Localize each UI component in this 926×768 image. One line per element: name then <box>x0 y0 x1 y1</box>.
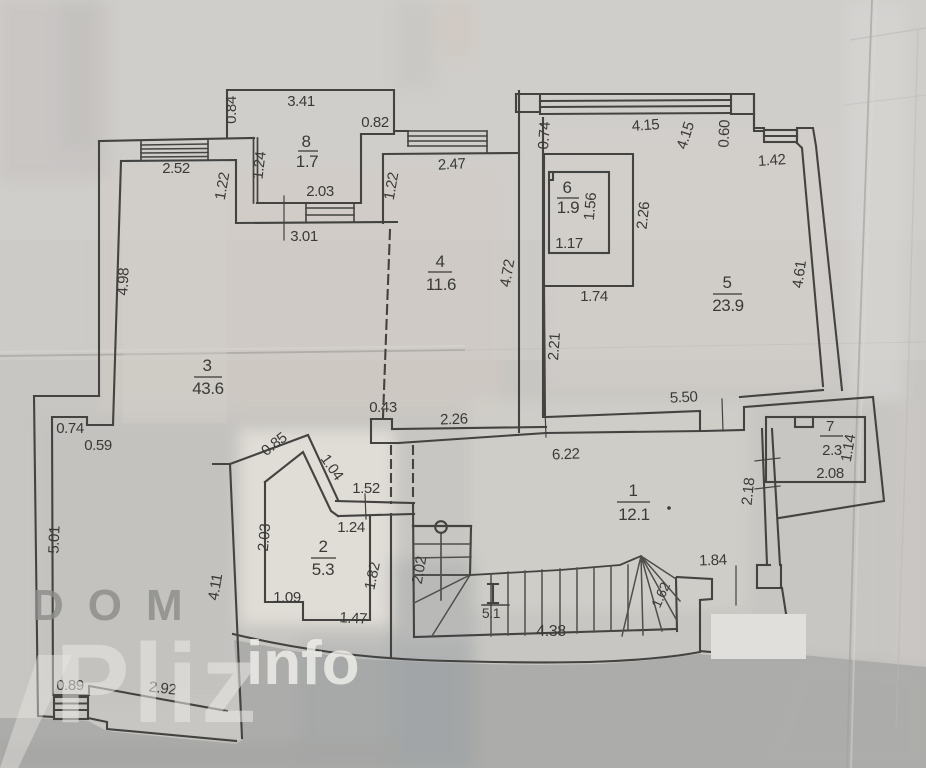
svg-text:1.24: 1.24 <box>249 151 269 181</box>
svg-text:2.18: 2.18 <box>739 477 759 506</box>
svg-text:1.42: 1.42 <box>757 151 786 170</box>
svg-text:4.15: 4.15 <box>631 116 660 135</box>
svg-text:1.17: 1.17 <box>555 235 583 252</box>
svg-text:23.9: 23.9 <box>712 296 744 315</box>
svg-text:3: 3 <box>202 356 211 375</box>
svg-text:1.09: 1.09 <box>273 589 301 606</box>
svg-text:Pliz: Pliz <box>55 621 260 746</box>
svg-text:1.24: 1.24 <box>337 519 365 536</box>
svg-text:0.74: 0.74 <box>56 420 84 437</box>
svg-text:2.52: 2.52 <box>162 160 190 177</box>
svg-text:2.47: 2.47 <box>437 155 466 173</box>
svg-text:2.03: 2.03 <box>306 183 334 200</box>
svg-text:2.21: 2.21 <box>545 332 564 361</box>
svg-text:5.1: 5.1 <box>482 605 501 621</box>
svg-text:4: 4 <box>435 252 444 271</box>
svg-text:4.98: 4.98 <box>114 267 132 296</box>
svg-text:2.26: 2.26 <box>440 411 468 429</box>
svg-text:6: 6 <box>562 178 571 197</box>
svg-text:8: 8 <box>301 132 310 151</box>
svg-text:3.01: 3.01 <box>290 228 318 245</box>
svg-text:2.03: 2.03 <box>255 523 274 552</box>
svg-text:4.38: 4.38 <box>536 623 566 640</box>
svg-text:0.60: 0.60 <box>716 120 734 148</box>
svg-text:1.9: 1.9 <box>557 198 579 217</box>
svg-text:5.3: 5.3 <box>312 560 334 579</box>
svg-text:0.74: 0.74 <box>535 121 554 150</box>
svg-text:3.41: 3.41 <box>287 93 315 110</box>
svg-text:0.59: 0.59 <box>84 437 112 454</box>
svg-text:1.7: 1.7 <box>296 152 318 171</box>
svg-text:1.52: 1.52 <box>352 480 380 497</box>
svg-text:2.26: 2.26 <box>634 201 654 230</box>
svg-text:11.6: 11.6 <box>426 275 456 294</box>
svg-text:info: info <box>246 629 360 698</box>
svg-text:2: 2 <box>318 537 327 556</box>
svg-text:43.6: 43.6 <box>192 379 224 398</box>
svg-text:0.84: 0.84 <box>223 96 240 124</box>
svg-text:1.84: 1.84 <box>699 552 727 570</box>
svg-text:0.82: 0.82 <box>361 114 389 131</box>
svg-text:7: 7 <box>826 418 834 435</box>
svg-text:12.1: 12.1 <box>618 505 650 524</box>
svg-text:0.43: 0.43 <box>369 399 397 416</box>
svg-text:2.08: 2.08 <box>816 465 844 482</box>
svg-text:1.74: 1.74 <box>580 288 608 305</box>
svg-text:6.22: 6.22 <box>552 446 580 464</box>
svg-text:1.47: 1.47 <box>339 609 368 627</box>
svg-text:5.01: 5.01 <box>46 526 64 554</box>
svg-text:1.56: 1.56 <box>581 192 600 221</box>
svg-text:5.50: 5.50 <box>669 388 698 406</box>
svg-text:5: 5 <box>722 273 731 292</box>
svg-text:1: 1 <box>628 481 637 500</box>
